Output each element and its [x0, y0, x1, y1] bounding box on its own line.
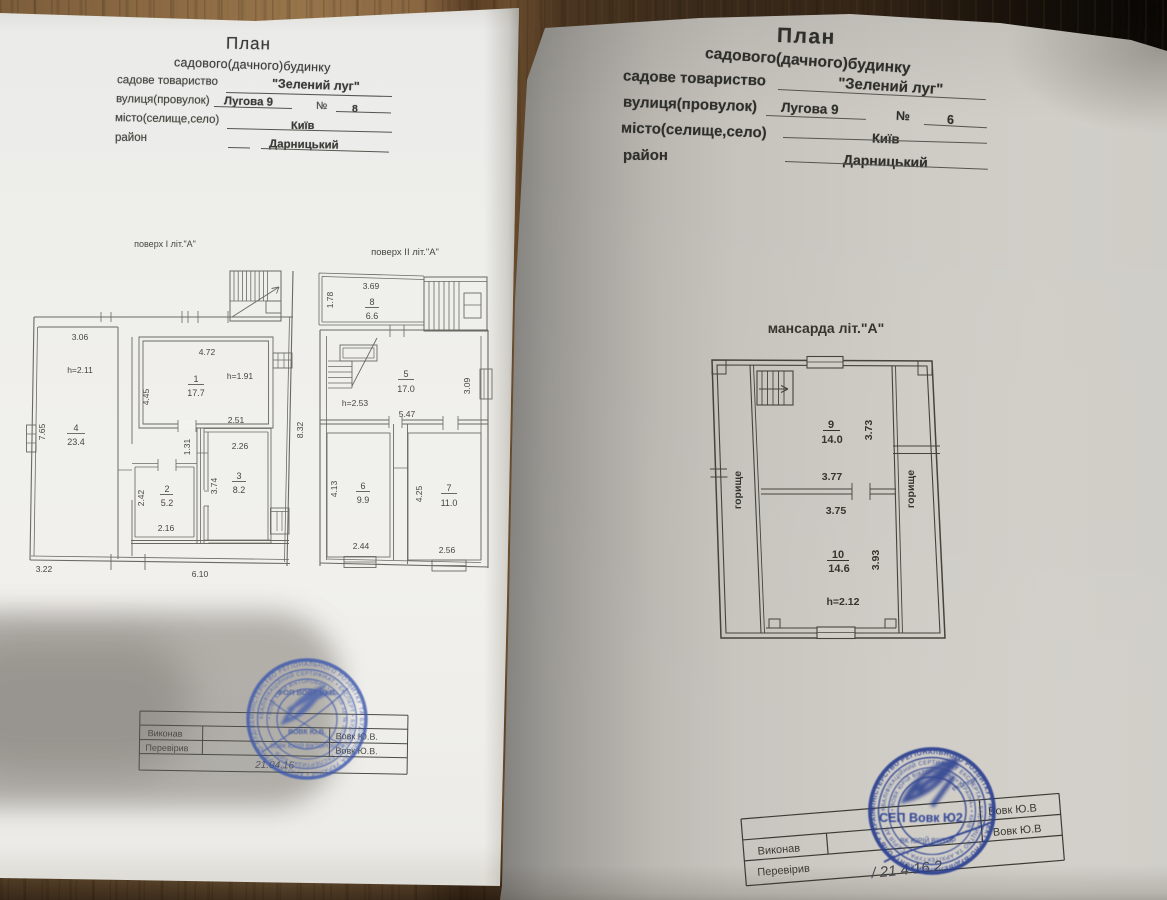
- svg-text:6.6: 6.6: [366, 311, 379, 321]
- svg-text:5.2: 5.2: [161, 498, 174, 508]
- svg-text:СЕП Вовк Ю2: СЕП Вовк Ю2: [879, 811, 963, 825]
- svg-text:h=2.11: h=2.11: [67, 365, 93, 375]
- svg-text:3.09: 3.09: [462, 377, 472, 394]
- svg-text:10: 10: [832, 549, 844, 561]
- svg-text:8.2: 8.2: [233, 485, 246, 495]
- svg-text:14.0: 14.0: [821, 434, 842, 446]
- svg-text:ВОВК ЮРІЙ ВІКТОРОВИЧ: ВОВК ЮРІЙ ВІКТОРОВИЧ: [270, 742, 343, 750]
- svg-text:h=2.12: h=2.12: [827, 596, 860, 608]
- svg-text:3.22: 3.22: [36, 564, 53, 574]
- svg-text:Виконав: Виконав: [757, 842, 801, 857]
- svg-text:7.65: 7.65: [37, 423, 47, 440]
- svg-text:2.44: 2.44: [353, 541, 370, 551]
- svg-text:9: 9: [828, 419, 834, 431]
- svg-text:2.26: 2.26: [232, 441, 249, 451]
- svg-text:5.47: 5.47: [399, 409, 416, 419]
- svg-text:мансарда літ."А": мансарда літ."А": [768, 320, 885, 336]
- svg-text:3.69: 3.69: [363, 281, 380, 291]
- svg-text:h=1.91: h=1.91: [227, 371, 254, 381]
- svg-text:11.0: 11.0: [441, 498, 458, 508]
- svg-text:h=2.53: h=2.53: [342, 398, 369, 408]
- svg-text:14.6: 14.6: [828, 563, 849, 575]
- svg-text:горище: горище: [905, 470, 917, 508]
- svg-text:7: 7: [446, 483, 451, 493]
- svg-text:17.0: 17.0: [397, 384, 415, 394]
- svg-text:Перевірив: Перевірив: [757, 863, 811, 879]
- svg-text:2.56: 2.56: [439, 545, 456, 555]
- svg-text:2.16: 2.16: [158, 523, 175, 533]
- svg-text:6.10: 6.10: [192, 569, 209, 579]
- svg-text:4.72: 4.72: [199, 347, 216, 357]
- svg-text:4.45: 4.45: [141, 388, 151, 405]
- svg-text:9.9: 9.9: [357, 495, 370, 505]
- svg-text:1.31: 1.31: [182, 438, 192, 455]
- svg-text:17.7: 17.7: [187, 388, 205, 398]
- svg-text:ВОВК Ю.В.: ВОВК Ю.В.: [288, 729, 326, 736]
- svg-text:2.42: 2.42: [136, 489, 146, 506]
- svg-text:3: 3: [236, 471, 241, 481]
- svg-text:3.73: 3.73: [863, 420, 875, 441]
- svg-text:3.93: 3.93: [870, 550, 882, 571]
- svg-text:4.13: 4.13: [329, 480, 339, 497]
- svg-text:3.06: 3.06: [72, 332, 89, 342]
- svg-text:поверх І літ."А": поверх І літ."А": [134, 239, 196, 249]
- svg-text:3.77: 3.77: [822, 471, 843, 483]
- svg-text:4.25: 4.25: [414, 485, 424, 502]
- svg-text:8.32: 8.32: [295, 421, 305, 438]
- svg-text:КВАЛІФІКАЦІЙНИЙ СЕРТИФІКАТ • Е: КВАЛІФІКАЦІЙНИЙ СЕРТИФІКАТ • ЕКСПЕРТ • Б…: [259, 671, 355, 767]
- svg-text:1.78: 1.78: [325, 291, 335, 308]
- svg-text:ФОП ВОВК Ю.В.: ФОП ВОВК Ю.В.: [277, 688, 337, 697]
- svg-text:6: 6: [360, 481, 365, 491]
- svg-text:3.75: 3.75: [826, 505, 847, 517]
- svg-text:Вовк Ю.В: Вовк Ю.В: [992, 823, 1041, 839]
- svg-text:8: 8: [369, 297, 374, 307]
- svg-text:4: 4: [73, 423, 78, 433]
- svg-text:5: 5: [403, 369, 408, 379]
- svg-text:1: 1: [193, 374, 198, 384]
- svg-text:горище: горище: [732, 471, 744, 509]
- svg-text:Виконав: Виконав: [148, 728, 183, 739]
- svg-text:поверх ІІ літ."А": поверх ІІ літ."А": [371, 247, 439, 258]
- svg-text:3.74: 3.74: [209, 477, 219, 494]
- svg-text:2: 2: [164, 484, 169, 494]
- svg-text:23.4: 23.4: [67, 437, 85, 447]
- svg-text:Перевірив: Перевірив: [145, 743, 188, 754]
- svg-text:2.51: 2.51: [228, 415, 245, 425]
